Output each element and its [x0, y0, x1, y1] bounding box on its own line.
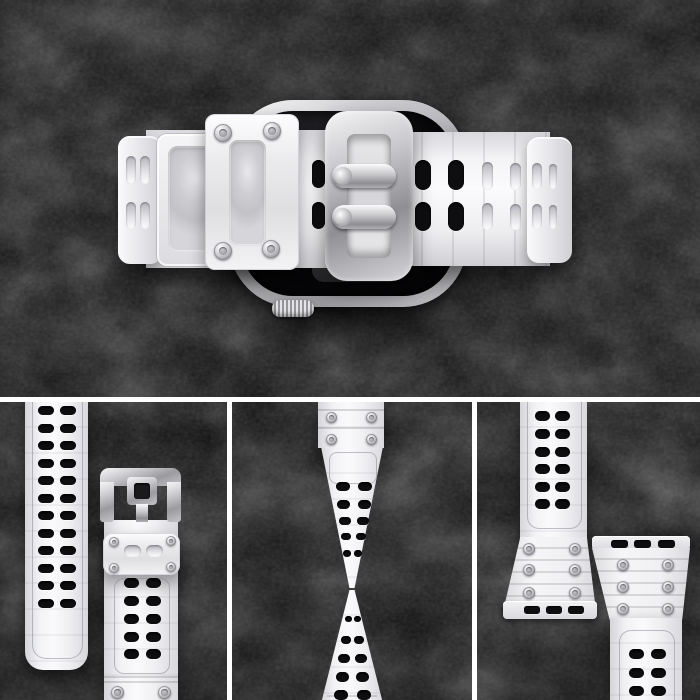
strap-end-ridge [104, 681, 178, 683]
buckle-tang-stem [136, 504, 148, 522]
buckle-prong-bottom [332, 205, 396, 229]
watch-digital-crown [272, 300, 314, 317]
twist-edge-line [327, 695, 377, 697]
buckle-tang-slot [134, 483, 150, 499]
buckle-right-post [167, 482, 181, 522]
lug-right-flare [592, 548, 690, 620]
buckle-opening [347, 134, 391, 258]
buckle-prong-top [332, 164, 396, 188]
lug-left-outline [527, 400, 582, 529]
tail-strap-inner-outline [32, 400, 83, 659]
product-screenshot [0, 0, 700, 700]
twist-upper-outline [329, 452, 377, 484]
vertical-divider-1 [227, 402, 232, 700]
buckle-strap-inner-outline [114, 578, 170, 674]
hero-product-photo [0, 0, 700, 398]
band-right-end-cap [527, 137, 572, 263]
lug-right-outline [619, 630, 675, 700]
band-left-end-cap [118, 136, 162, 264]
twist-lower-strap [320, 590, 384, 700]
lug-left-flare [505, 537, 595, 603]
lug-right-connector-bar [592, 536, 690, 550]
lug-connector [318, 402, 384, 448]
strap-end-ridge [104, 676, 178, 678]
detail-panel-straps [0, 402, 227, 700]
buckle-left-post [100, 482, 114, 522]
lug-left-connector-bar [503, 601, 597, 619]
detail-panel-lugs [477, 402, 700, 700]
vertical-divider-2 [472, 402, 477, 700]
detail-panel-twist [232, 402, 472, 700]
strap-keeper [103, 533, 180, 575]
horizontal-divider [0, 397, 700, 402]
keeper-frost-window [229, 140, 266, 246]
